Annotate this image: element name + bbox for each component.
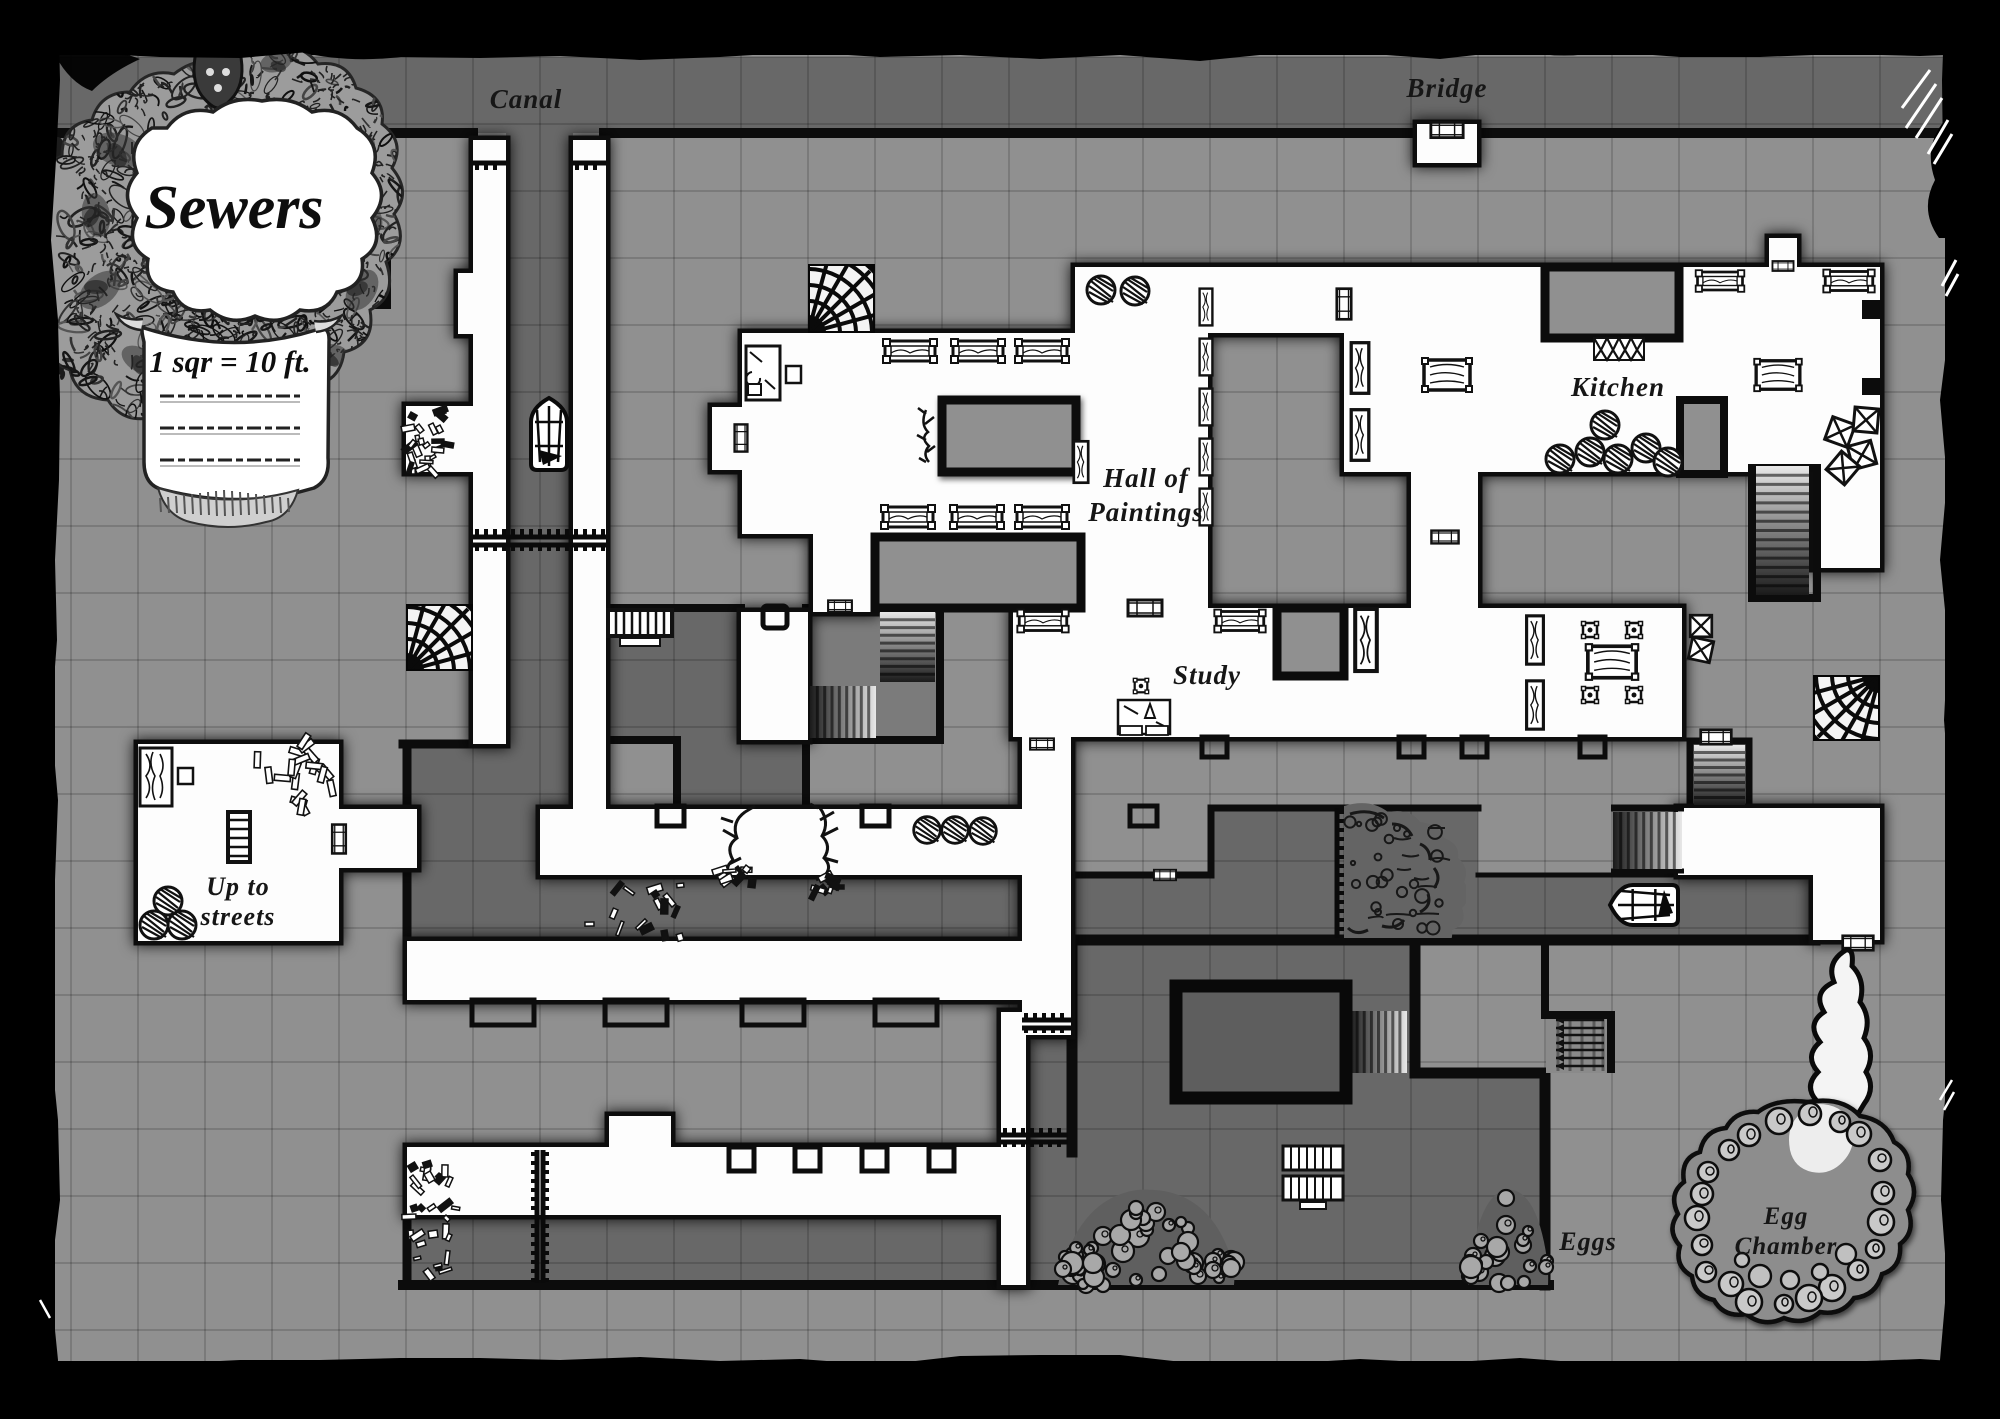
svg-text:1 sqr = 10 ft.: 1 sqr = 10 ft. bbox=[149, 344, 310, 379]
svg-text:Paintings: Paintings bbox=[1087, 497, 1204, 527]
svg-text:Canal: Canal bbox=[490, 84, 563, 114]
svg-text:Kitchen: Kitchen bbox=[1570, 372, 1665, 402]
svg-text:Sewers: Sewers bbox=[144, 174, 323, 242]
svg-text:Chamber: Chamber bbox=[1735, 1233, 1838, 1260]
svg-text:streets: streets bbox=[200, 902, 276, 931]
svg-text:Egg: Egg bbox=[1763, 1203, 1809, 1230]
svg-text:Bridge: Bridge bbox=[1405, 73, 1487, 103]
svg-text:Hall of: Hall of bbox=[1102, 463, 1191, 493]
svg-text:Up to: Up to bbox=[206, 872, 270, 901]
svg-text:Study: Study bbox=[1173, 660, 1241, 690]
svg-text:Eggs: Eggs bbox=[1558, 1227, 1616, 1256]
